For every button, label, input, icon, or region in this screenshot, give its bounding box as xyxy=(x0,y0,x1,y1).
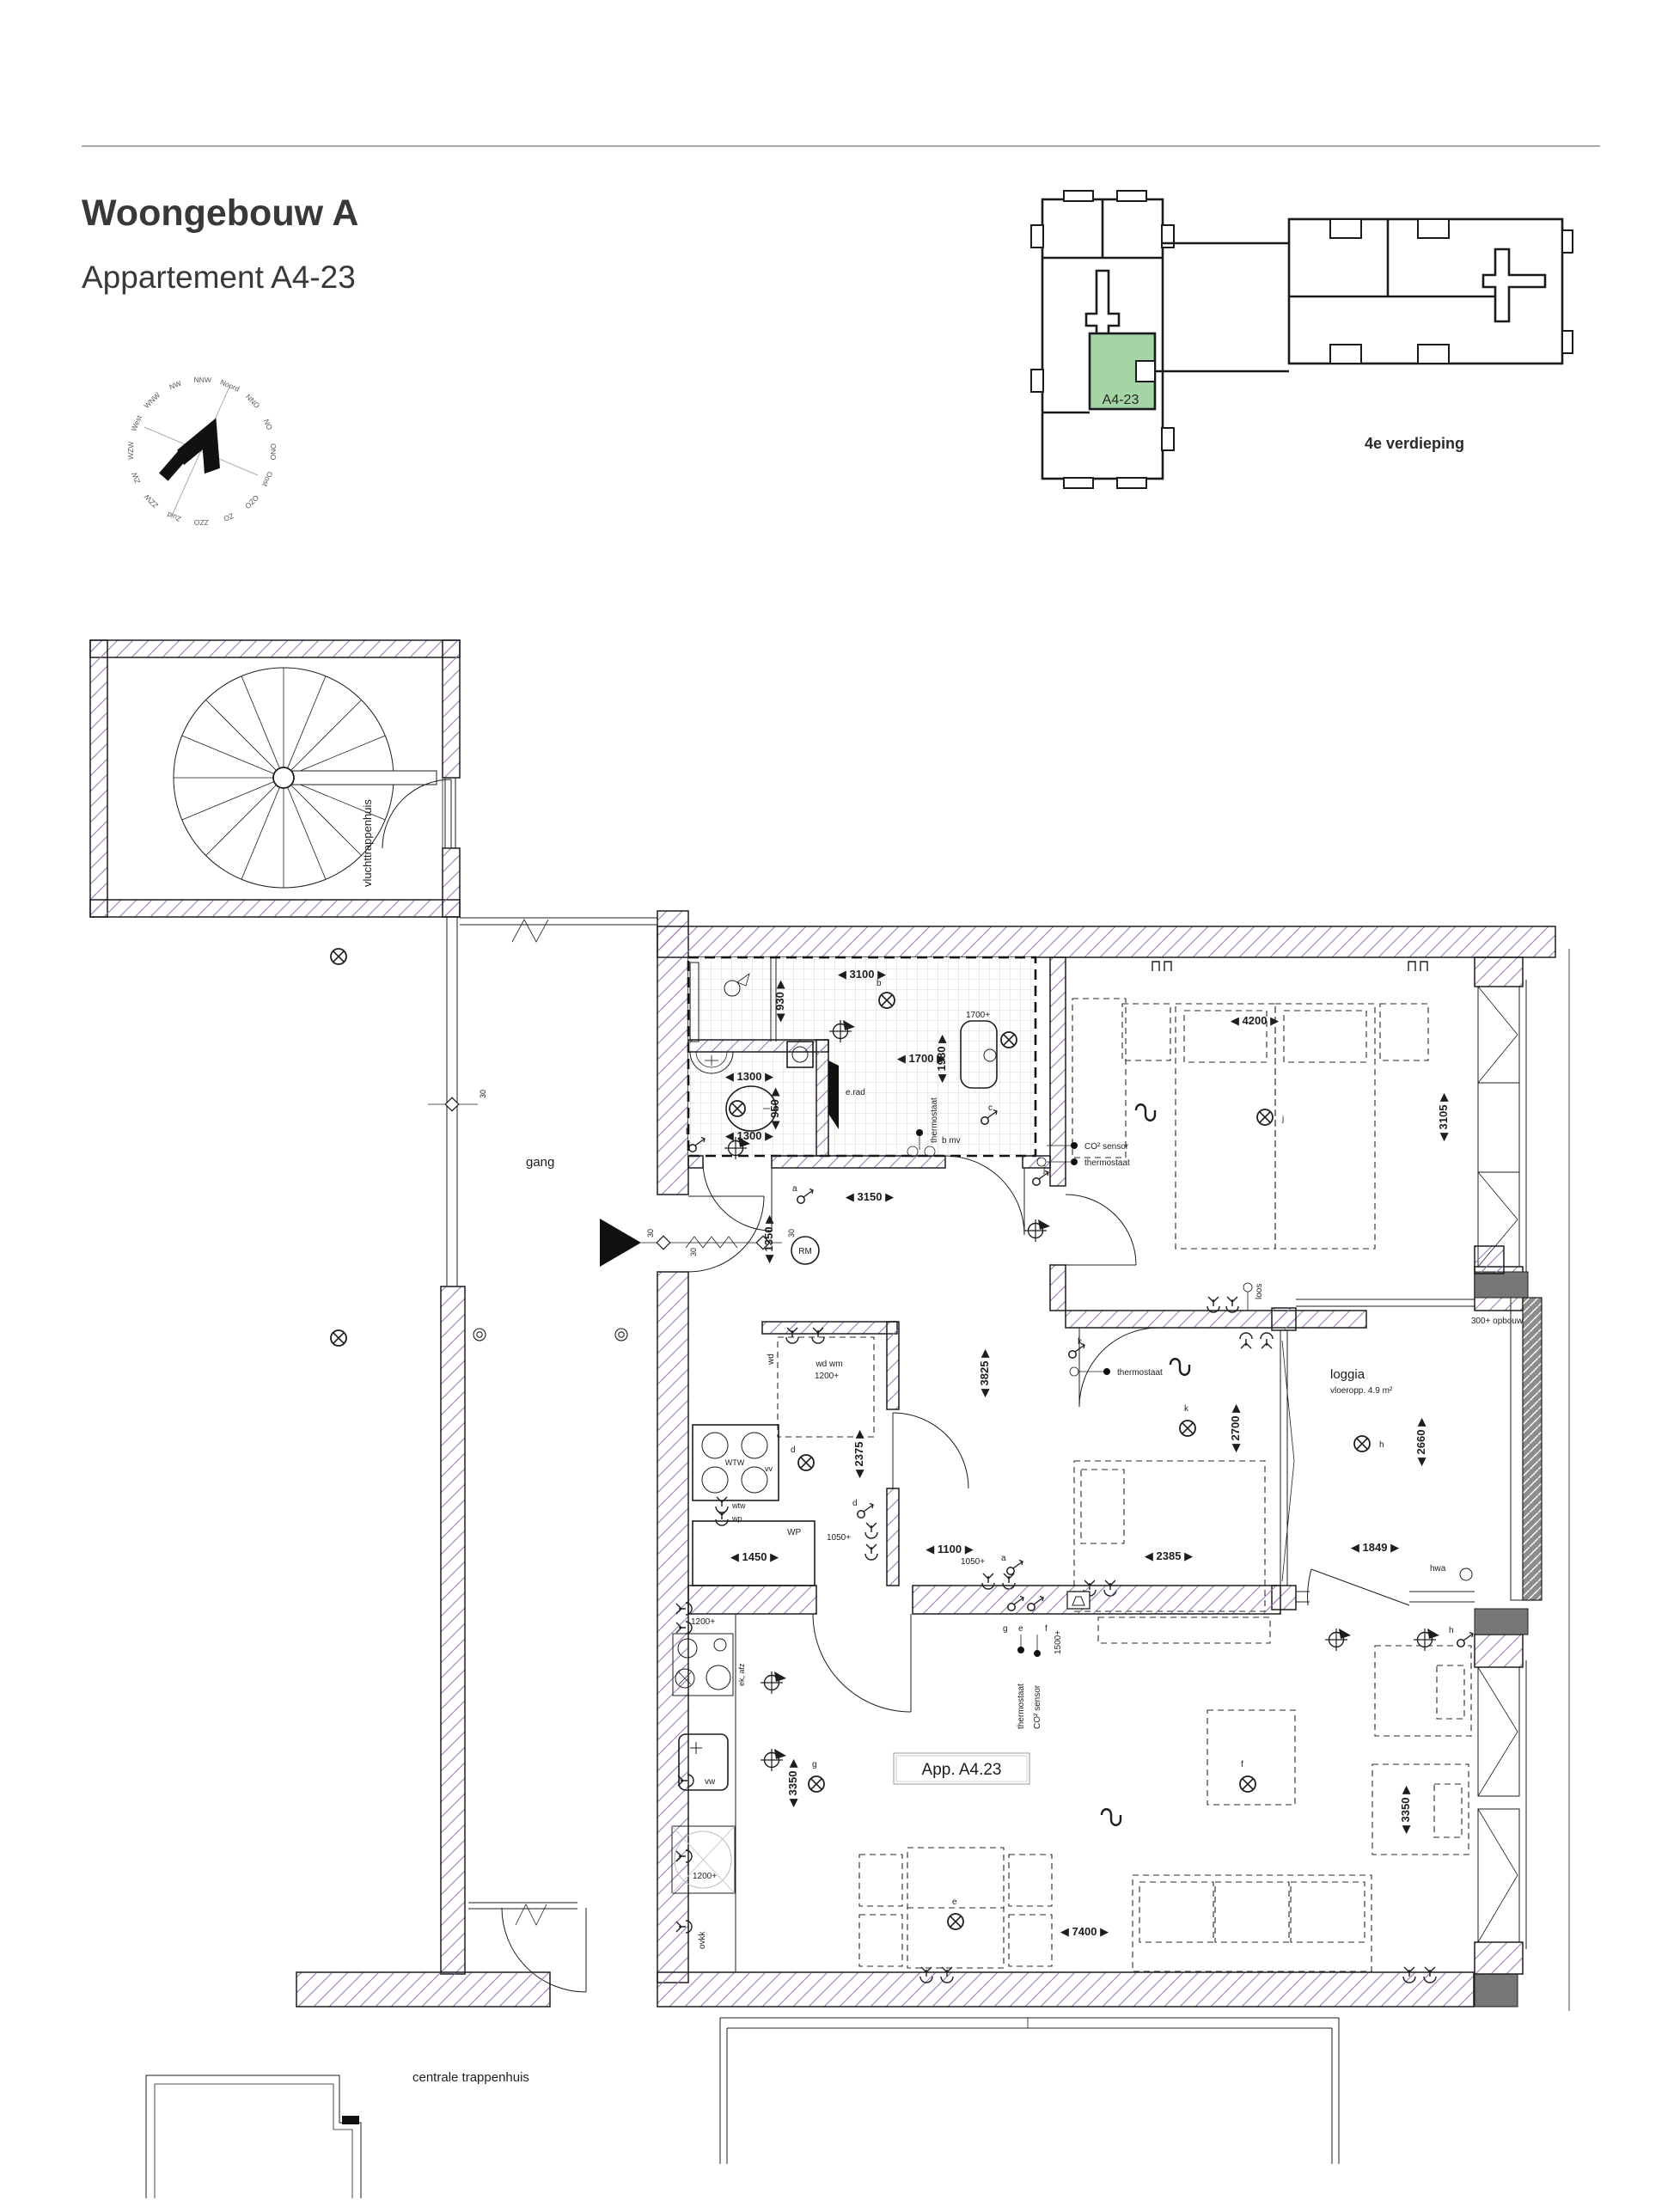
thermostat-label: thermostaat xyxy=(930,1097,939,1143)
socket-icon xyxy=(865,1523,877,1538)
switch-icon xyxy=(1033,1171,1048,1186)
socket-height-label: 1200+ xyxy=(693,1872,717,1881)
switch-label-d: d xyxy=(852,1499,858,1508)
wd-label: wd xyxy=(767,1354,776,1366)
wall-hook-icon xyxy=(1152,962,1171,971)
switch-label-k: k xyxy=(1078,1337,1083,1347)
socket-height-label: 1050+ xyxy=(827,1533,851,1543)
wall-light-icon xyxy=(1024,1219,1050,1242)
floorplan-page: Woongebouw A Appartement A4-23 Noord NNO… xyxy=(0,0,1680,2200)
washer-dryer xyxy=(778,1328,874,1437)
compass-label: ZW xyxy=(130,471,142,485)
dim-bed1-d: ◀ 3105 ▶ xyxy=(1437,1093,1450,1141)
dim-kitchen: ◀ 3350 ▶ xyxy=(786,1759,799,1807)
ceiling-light-icon xyxy=(879,993,895,1008)
compass-label: ZO xyxy=(222,511,235,523)
balcony xyxy=(720,2018,1339,2164)
socket-height-label: 1500+ xyxy=(1054,1630,1063,1654)
switch-label-g: g xyxy=(1003,1624,1008,1634)
dim-wp: ◀ 1450 ▶ xyxy=(730,1550,779,1563)
dim-wc-side: ◀ 950 ▶ xyxy=(768,1088,781,1130)
wall-light-icon xyxy=(761,1671,786,1694)
switch-label-j: j xyxy=(1042,1165,1045,1175)
hwa-label: hwa xyxy=(1430,1564,1446,1574)
compass-label: NO xyxy=(262,418,274,431)
co2-sensor-label: CO² sensor xyxy=(1084,1142,1129,1152)
wtw-unit-label: WTW xyxy=(725,1458,745,1467)
switch-label-b: b xyxy=(877,979,882,988)
sensor-legend: thermostaat xyxy=(1070,1367,1163,1378)
double-bed xyxy=(1176,1004,1375,1249)
switch-icon xyxy=(858,1504,873,1519)
bedroom-1: ◀ 4200 ▶ ◀ 3105 ▶ j CO² sensor thermosta… xyxy=(1024,957,1450,1348)
thermostat-label: thermostaat xyxy=(1117,1368,1163,1378)
ceiling-light-icon xyxy=(1257,1109,1273,1125)
ceiling-light-icon xyxy=(798,1455,814,1470)
switch-icon xyxy=(1069,1344,1084,1359)
bedroom-window xyxy=(1478,980,1526,1272)
ceiling-light-icon xyxy=(809,1776,824,1792)
wall-hook-icon xyxy=(1408,962,1427,971)
dim-hall-w: ◀ 3150 ▶ xyxy=(846,1190,894,1203)
dim-loggia-w: ◀ 1849 ▶ xyxy=(1351,1541,1399,1554)
switch-label-l: l xyxy=(686,1127,687,1137)
socket-height-label: 1050+ xyxy=(961,1557,985,1567)
gallery-light-icon xyxy=(331,1330,346,1346)
compass-label: WZW xyxy=(126,442,135,460)
keyplan: A4-23 4e verdieping xyxy=(1031,191,1573,488)
fire-30-label: 30 xyxy=(689,1248,698,1256)
ceiling-light-icon xyxy=(1180,1421,1195,1436)
switch-label-j: j xyxy=(1281,1115,1284,1124)
switch-label-k: k xyxy=(1184,1404,1189,1414)
bedroom-2: k thermostaat k ◀ 2700 ▶ ◀ 2385 ▶ xyxy=(1069,1308,1296,1611)
compass-label: NW xyxy=(168,379,182,392)
room-label-gang: gang xyxy=(526,1155,554,1170)
armchair xyxy=(1375,1646,1471,1736)
dim-wc-bottom: ◀ 1300 ▶ xyxy=(725,1129,773,1142)
vw-label: vw xyxy=(705,1777,716,1787)
fire-30-label: 30 xyxy=(479,1090,487,1098)
room-label-centrale-trappenhuis: centrale trappenhuis xyxy=(412,2070,529,2085)
socket-height-label: 1700+ xyxy=(966,1011,990,1020)
compass-label: ZZO xyxy=(193,518,208,527)
compass-label: Oost xyxy=(260,470,274,488)
dim-bed2-w: ◀ 2385 ▶ xyxy=(1145,1549,1193,1562)
living-window xyxy=(1478,1660,1526,1949)
wall-light-icon xyxy=(761,1749,786,1771)
living-room: g e f thermostaat CO² sensor 1500+ 1200+… xyxy=(672,1586,1473,1983)
doorbell-icon xyxy=(473,1329,486,1341)
switch-label-a: a xyxy=(1001,1554,1006,1563)
switch-label-h: h xyxy=(1379,1440,1384,1450)
compass-label: Noord xyxy=(219,377,241,393)
switch-label-e: e xyxy=(952,1897,957,1907)
sideboard xyxy=(1098,1617,1270,1643)
dim-bed1-w: ◀ 4200 ▶ xyxy=(1231,1014,1279,1027)
compass-label: ONO xyxy=(269,443,278,461)
keyplan-floor-label: 4e verdieping xyxy=(1365,435,1464,452)
ceiling-light-icon xyxy=(948,1914,963,1929)
sofa xyxy=(1133,1875,1371,1971)
doorbell-icon xyxy=(615,1329,627,1341)
dim-tech: ◀ 2375 ▶ xyxy=(852,1430,865,1478)
switch-icon xyxy=(1007,1561,1023,1575)
dim-living-w: ◀ 7400 ▶ xyxy=(1060,1925,1109,1938)
escape-stairwell: vluchttrappenhuis xyxy=(90,640,460,917)
switch-icon xyxy=(1457,1633,1473,1647)
bathroom: ◀ 3100 ▶ ◀ 930 ▶ b ◀ 1700 ▶ ◀ 1980 ▶ 170… xyxy=(688,957,1035,1157)
switch-label-e: e xyxy=(1018,1624,1023,1634)
compass-label: West xyxy=(129,413,144,432)
hall: a ◀ 3150 ▶ 30 ◀ 1350 ▶ RM ◀ 3825 ▶ ◀ 110… xyxy=(688,1156,1050,1589)
switch-label-a: a xyxy=(792,1184,797,1194)
ceiling-light-icon xyxy=(1354,1436,1370,1451)
ovkk-label: ovkk xyxy=(698,1930,707,1949)
dim-hall-len: ◀ 3825 ▶ xyxy=(978,1349,991,1397)
wardrobe xyxy=(1072,999,1126,1158)
gallery-light-icon xyxy=(331,949,346,964)
dim-wc-top: ◀ 1300 ▶ xyxy=(725,1070,773,1083)
page-subtitle: Appartement A4-23 xyxy=(82,260,356,295)
smoke-detector: RM xyxy=(791,1237,819,1264)
header: Woongebouw A Appartement A4-23 xyxy=(82,146,1600,295)
mv-label: b mv xyxy=(942,1136,961,1146)
ek-afz-label: ek, afz xyxy=(737,1663,746,1686)
wp-unit-label: WP xyxy=(787,1528,801,1537)
co2-sensor-label: CO² sensor xyxy=(1033,1684,1042,1729)
switch-label-f: f xyxy=(1241,1760,1243,1769)
compass-label: OZO xyxy=(243,493,260,510)
wall-light-icon xyxy=(1414,1629,1439,1651)
erad-label: e.rad xyxy=(846,1088,865,1097)
switch-label-d: d xyxy=(791,1445,796,1455)
socket-icon xyxy=(865,1544,877,1560)
vv-label: vv xyxy=(765,1464,773,1473)
page-title: Woongebouw A xyxy=(82,192,358,234)
fire-30-label: 30 xyxy=(787,1229,796,1237)
intercom xyxy=(1067,1592,1090,1609)
room-label-vluchttrappenhuis: vluchttrappenhuis xyxy=(361,799,374,887)
loggia-area-label: vloeropp. 4.9 m² xyxy=(1330,1386,1393,1396)
ceiling-light-icon xyxy=(730,1101,745,1116)
keyplan-unit-label: A4-23 xyxy=(1103,393,1139,407)
wall-light-icon xyxy=(1325,1629,1351,1651)
switch-label-f: f xyxy=(1045,1624,1048,1634)
ceiling-light-icon xyxy=(1001,1032,1017,1048)
socket-height-label: 1200+ xyxy=(691,1617,715,1627)
dim-living-d: ◀ 3350 ▶ xyxy=(1399,1786,1412,1834)
spiral-stair xyxy=(174,668,437,888)
fire-30-label: 30 xyxy=(646,1229,655,1237)
switch-label-c: c xyxy=(988,1103,993,1113)
nightstand xyxy=(1122,1004,1170,1060)
switch-icon xyxy=(797,1189,813,1204)
ceiling-light-icon xyxy=(1240,1776,1255,1792)
compass-label: Zuid xyxy=(166,510,182,524)
compass-label: NNW xyxy=(194,376,211,384)
apartment-label-box: App. A4.23 xyxy=(894,1753,1029,1784)
dim-loggia-d: ◀ 2660 ▶ xyxy=(1414,1418,1427,1466)
thermostat-label: thermostaat xyxy=(1084,1158,1130,1168)
wdwm-label: wd wm xyxy=(815,1360,842,1369)
dining-table xyxy=(859,1848,1052,1968)
dim-bed2-d: ◀ 2700 ▶ xyxy=(1229,1404,1242,1452)
lower-landing xyxy=(146,2075,361,2198)
switch-label-g: g xyxy=(812,1760,817,1769)
switch-label-h: h xyxy=(1449,1626,1454,1635)
compass-label: ZZW xyxy=(143,492,160,510)
dim-hall-entry: ◀ 1350 ▶ xyxy=(762,1215,775,1263)
compass-label: WNW xyxy=(142,391,162,411)
radiator-icon xyxy=(1136,1104,1155,1121)
apartment-label: App. A4.23 xyxy=(922,1761,1002,1779)
north-arrow-icon xyxy=(157,406,237,498)
socket-height-label: 1200+ xyxy=(815,1372,839,1381)
compass-rose: Noord NNO NO ONO Oost OZO ZO ZZO Zuid ZZ… xyxy=(126,376,278,527)
compass-label: NNO xyxy=(244,393,262,411)
smoke-detector-label: RM xyxy=(798,1247,812,1256)
opbouw-label: 300+ opbouw xyxy=(1471,1317,1524,1326)
dim-shower: ◀ 930 ▶ xyxy=(773,981,786,1023)
dim-hall-pass: ◀ 1100 ▶ xyxy=(926,1543,973,1555)
dim-bath-h: ◀ 1980 ▶ xyxy=(935,1035,948,1083)
armchair xyxy=(1372,1764,1469,1855)
room-label-loggia: loggia xyxy=(1330,1367,1365,1382)
thermostat-label: thermostaat xyxy=(1017,1684,1026,1729)
wtw-label: wtw xyxy=(731,1501,746,1510)
radiator-icon xyxy=(1102,1809,1121,1825)
loos-label: loos xyxy=(1255,1284,1264,1299)
radiator-icon xyxy=(1170,1359,1189,1375)
nightstand xyxy=(1380,1004,1428,1060)
